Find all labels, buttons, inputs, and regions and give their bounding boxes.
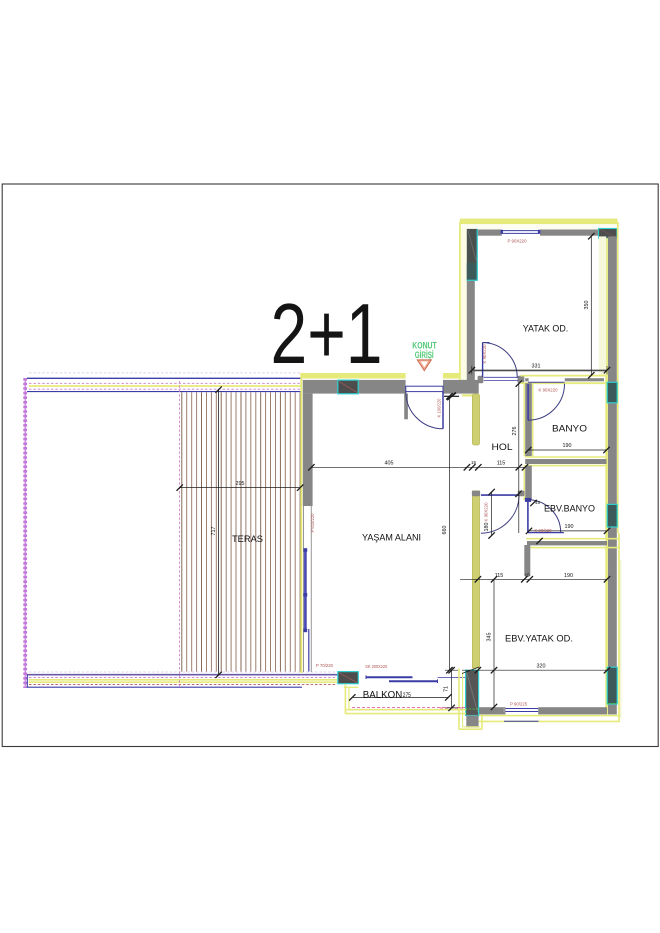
svg-text:2+1: 2+1 xyxy=(271,287,383,382)
svg-text:350: 350 xyxy=(584,301,590,310)
svg-text:K 90X220: K 90X220 xyxy=(539,388,559,393)
svg-text:K 90X220: K 90X220 xyxy=(484,502,489,522)
svg-text:HOL: HOL xyxy=(492,442,514,453)
svg-text:660: 660 xyxy=(442,526,448,535)
svg-text:345: 345 xyxy=(487,633,493,642)
svg-text:115: 115 xyxy=(497,461,506,467)
svg-text:717: 717 xyxy=(211,527,217,536)
svg-text:295: 295 xyxy=(236,481,245,487)
svg-text:K 100/220: K 100/220 xyxy=(437,398,442,418)
svg-text:15: 15 xyxy=(471,460,477,465)
svg-text:190: 190 xyxy=(564,573,573,579)
svg-text:71: 71 xyxy=(443,686,449,692)
svg-text:320: 320 xyxy=(537,663,546,669)
svg-text:P 70/220: P 70/220 xyxy=(316,663,334,668)
svg-text:P 90/225: P 90/225 xyxy=(510,702,528,707)
svg-text:YATAK OD.: YATAK OD. xyxy=(523,323,569,334)
svg-text:K 90/220: K 90/220 xyxy=(535,528,553,533)
svg-text:180: 180 xyxy=(484,523,490,532)
svg-text:15: 15 xyxy=(525,573,531,578)
svg-text:SK 200X220: SK 200X220 xyxy=(365,664,388,669)
svg-text:BALKON: BALKON xyxy=(363,690,403,701)
svg-text:190: 190 xyxy=(565,524,574,530)
svg-text:TERAS: TERAS xyxy=(232,534,263,545)
svg-text:K 90X220: K 90X220 xyxy=(482,344,487,364)
svg-text:275: 275 xyxy=(403,692,411,699)
svg-text:EBV.BANYO: EBV.BANYO xyxy=(544,504,595,515)
svg-text:P 90X220: P 90X220 xyxy=(508,238,528,243)
svg-text:KONUT: KONUT xyxy=(412,340,437,350)
svg-text:405: 405 xyxy=(385,461,394,467)
svg-text:190: 190 xyxy=(563,443,572,449)
svg-text:YAŞAM ALANI: YAŞAM ALANI xyxy=(362,533,421,544)
svg-text:GİRİŞİ: GİRİŞİ xyxy=(415,350,434,360)
svg-text:BANYO: BANYO xyxy=(552,424,587,435)
svg-text:P 610/220: P 610/220 xyxy=(310,513,315,533)
svg-text:276: 276 xyxy=(512,427,518,436)
svg-text:EBV.YATAK OD.: EBV.YATAK OD. xyxy=(505,634,573,645)
svg-text:331: 331 xyxy=(532,364,541,370)
